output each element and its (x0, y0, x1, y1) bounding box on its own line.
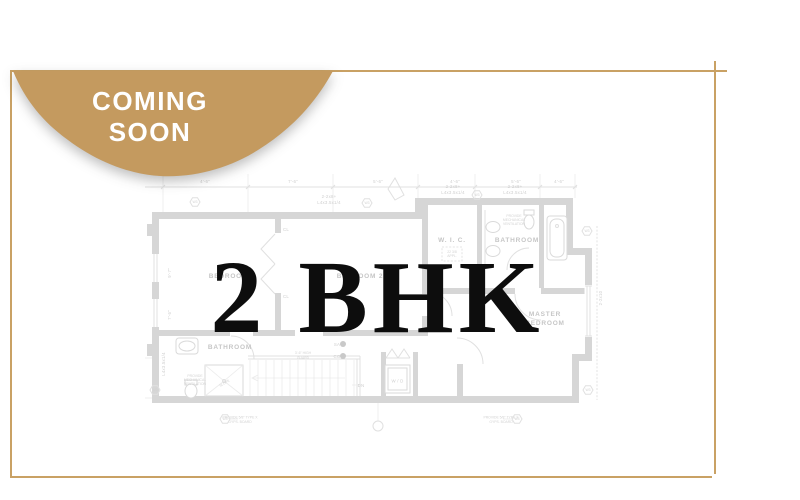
room-label-closet-top: CL (283, 227, 289, 232)
shower-icon: SLOPE (205, 365, 243, 396)
svg-text:GYPS. BOARD: GYPS. BOARD (489, 420, 513, 424)
svg-text:VENTILATION: VENTILATION (503, 222, 526, 226)
lumber-note: 2-2x8+ (508, 184, 523, 189)
dn-label: DN (358, 383, 365, 388)
svg-text:W3: W3 (152, 388, 157, 392)
toilet-icon-top (524, 210, 534, 229)
svg-text:W3: W3 (364, 201, 369, 205)
svg-text:W3: W3 (585, 388, 590, 392)
svg-text:W3: W3 (514, 417, 519, 421)
washer-dryer-box: W / D (385, 365, 410, 393)
badge-text-line1: COMING (92, 86, 208, 116)
svg-text:VENTILATION: VENTILATION (184, 382, 207, 386)
vent-note-top: PROVIDE MECHANICAL VENTILATION (503, 214, 526, 226)
svg-text:W3: W3 (584, 229, 589, 233)
lumber-note: 2-2x8+ (322, 194, 337, 199)
frame-border-right (714, 61, 716, 474)
lumber-note: L4x3.5x1/4 (161, 352, 166, 376)
unit-type-title: 2 BHK (145, 246, 610, 350)
dim-label: 5'-6" (373, 179, 383, 184)
lumber-note: L4x3.5x1/4 (317, 200, 341, 205)
wd-label: W / D (392, 379, 404, 384)
frame-border-bottom (10, 476, 712, 478)
lumber-note: L4x3.5x1/4 (503, 190, 527, 195)
svg-text:GUARD: GUARD (297, 356, 310, 360)
dim-label: 4'-6" (554, 179, 564, 184)
vent-note-bottom: PROVIDE MECHANICAL VENTILATION (184, 374, 207, 386)
stairs (248, 356, 360, 396)
badge-text-line2: SOON (109, 117, 192, 147)
lumber-note: 2-2x8+ (446, 184, 461, 189)
coming-soon-listing-card: 4'-6" 7'-6" 5'-6" 4'-6" 5'-6" 4'-6" 2-2x… (0, 0, 800, 500)
svg-text:W3: W3 (192, 200, 197, 204)
svg-text:GYPS. BOARD: GYPS. BOARD (228, 420, 252, 424)
svg-text:W3: W3 (222, 417, 227, 421)
coming-soon-badge: COMING SOON (8, 70, 344, 182)
lumber-note: L4x3.5x1/4 (441, 190, 465, 195)
svg-text:W3: W3 (474, 193, 479, 197)
